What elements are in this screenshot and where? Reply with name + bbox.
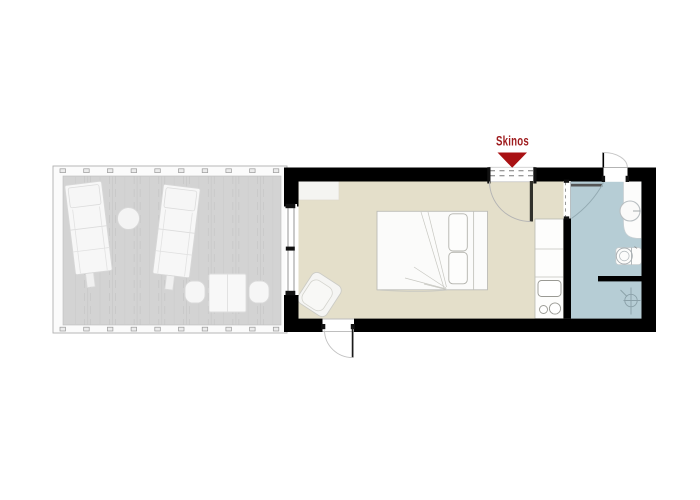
- svg-text:Skinos: Skinos: [496, 133, 529, 149]
